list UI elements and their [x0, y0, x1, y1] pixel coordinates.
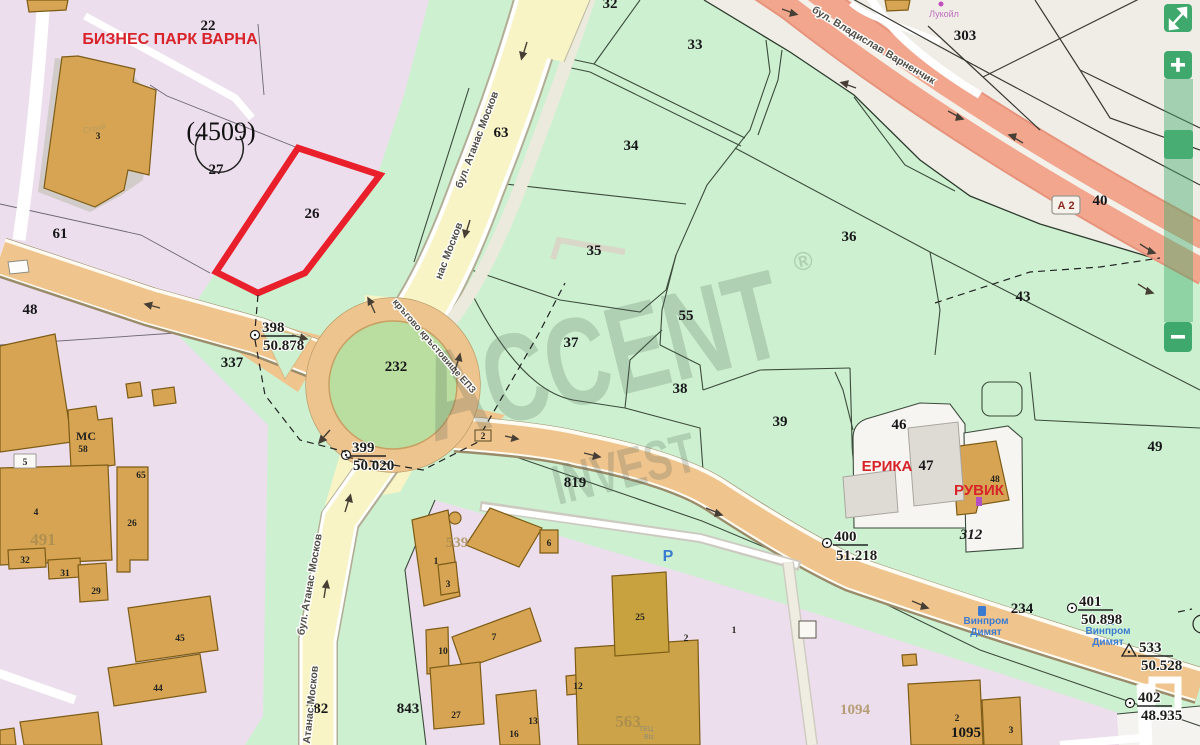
svg-text:50.020: 50.020	[353, 458, 394, 474]
svg-text:43: 43	[1016, 289, 1031, 305]
svg-text:3: 3	[96, 132, 101, 142]
svg-text:400: 400	[834, 529, 857, 545]
svg-text:61: 61	[53, 226, 68, 242]
svg-text:51.218: 51.218	[836, 548, 877, 564]
svg-text:48: 48	[23, 302, 38, 318]
svg-text:29: 29	[91, 587, 101, 597]
svg-text:3: 3	[1009, 726, 1014, 736]
svg-text:38: 38	[673, 381, 688, 397]
svg-text:1094: 1094	[840, 702, 871, 718]
svg-text:(4509): (4509)	[186, 117, 255, 146]
svg-text:МС: МС	[76, 429, 96, 443]
svg-text:2: 2	[955, 714, 960, 724]
svg-text:27: 27	[451, 711, 461, 721]
svg-text:32: 32	[20, 556, 30, 566]
svg-text:44: 44	[153, 684, 163, 694]
svg-text:Димят: Димят	[1092, 637, 1124, 648]
svg-text:5: 5	[23, 458, 28, 468]
svg-text:10: 10	[438, 647, 448, 657]
svg-text:Лукойл: Лукойл	[929, 9, 959, 19]
svg-text:50.878: 50.878	[263, 338, 304, 354]
svg-text:49: 49	[1148, 439, 1163, 455]
svg-text:398: 398	[262, 320, 285, 336]
svg-text:337: 337	[221, 355, 244, 371]
svg-text:1: 1	[434, 557, 439, 567]
svg-text:1095: 1095	[951, 725, 981, 741]
svg-text:3: 3	[446, 580, 451, 590]
svg-text:26: 26	[305, 206, 321, 222]
svg-text:4: 4	[34, 508, 39, 518]
svg-text:32: 32	[603, 0, 618, 12]
svg-text:34: 34	[624, 138, 640, 154]
svg-text:31: 31	[60, 569, 70, 579]
svg-text:2: 2	[481, 432, 486, 442]
svg-text:Димят: Димят	[970, 627, 1002, 638]
svg-text:303: 303	[954, 28, 977, 44]
svg-text:36: 36	[842, 229, 858, 245]
svg-text:13: 13	[528, 717, 538, 727]
svg-text:25: 25	[635, 613, 645, 623]
svg-text:А 2: А 2	[1057, 200, 1074, 212]
svg-text:819: 819	[564, 475, 587, 491]
svg-text:234: 234	[1011, 601, 1034, 617]
svg-text:БИЗНЕС ПАРК ВАРНА: БИЗНЕС ПАРК ВАРНА	[82, 31, 258, 48]
svg-text:Винпром: Винпром	[964, 616, 1009, 627]
svg-text:Btz: Btz	[644, 734, 655, 741]
svg-text:533: 533	[1139, 640, 1162, 656]
svg-text:45: 45	[175, 634, 185, 644]
svg-text:7: 7	[492, 633, 497, 643]
svg-text:399: 399	[352, 440, 375, 456]
svg-text:33: 33	[688, 37, 703, 53]
svg-text:12: 12	[573, 682, 583, 692]
svg-text:402: 402	[1138, 690, 1161, 706]
svg-text:47: 47	[919, 458, 935, 474]
svg-text:26: 26	[127, 519, 137, 529]
svg-text:6: 6	[547, 539, 552, 549]
svg-text:843: 843	[397, 701, 420, 717]
svg-text:401: 401	[1079, 594, 1102, 610]
svg-text:539: 539	[446, 535, 469, 551]
svg-text:232: 232	[385, 359, 408, 375]
svg-text:58: 58	[78, 445, 88, 455]
svg-text:2: 2	[684, 634, 689, 644]
svg-text:40: 40	[1093, 193, 1108, 209]
svg-text:Р: Р	[663, 548, 674, 565]
svg-text:563: 563	[615, 712, 641, 731]
svg-text:50.898: 50.898	[1081, 612, 1122, 628]
svg-text:55: 55	[679, 308, 694, 324]
svg-text:46: 46	[892, 417, 908, 433]
svg-text:39: 39	[773, 414, 788, 430]
svg-text:50.528: 50.528	[1141, 658, 1182, 674]
svg-text:65: 65	[136, 471, 146, 481]
svg-text:312: 312	[959, 527, 983, 543]
svg-text:РУВИК: РУВИК	[954, 482, 1005, 499]
svg-text:63: 63	[494, 125, 509, 141]
svg-text:37: 37	[564, 335, 580, 351]
svg-text:48.935: 48.935	[1141, 708, 1182, 724]
svg-text:35: 35	[587, 243, 602, 259]
svg-text:491: 491	[30, 530, 56, 549]
svg-text:16: 16	[509, 730, 519, 740]
svg-text:ТЕЦ: ТЕЦ	[639, 726, 654, 733]
svg-text:ЕРИКА: ЕРИКА	[862, 458, 913, 475]
svg-text:1: 1	[732, 626, 737, 636]
